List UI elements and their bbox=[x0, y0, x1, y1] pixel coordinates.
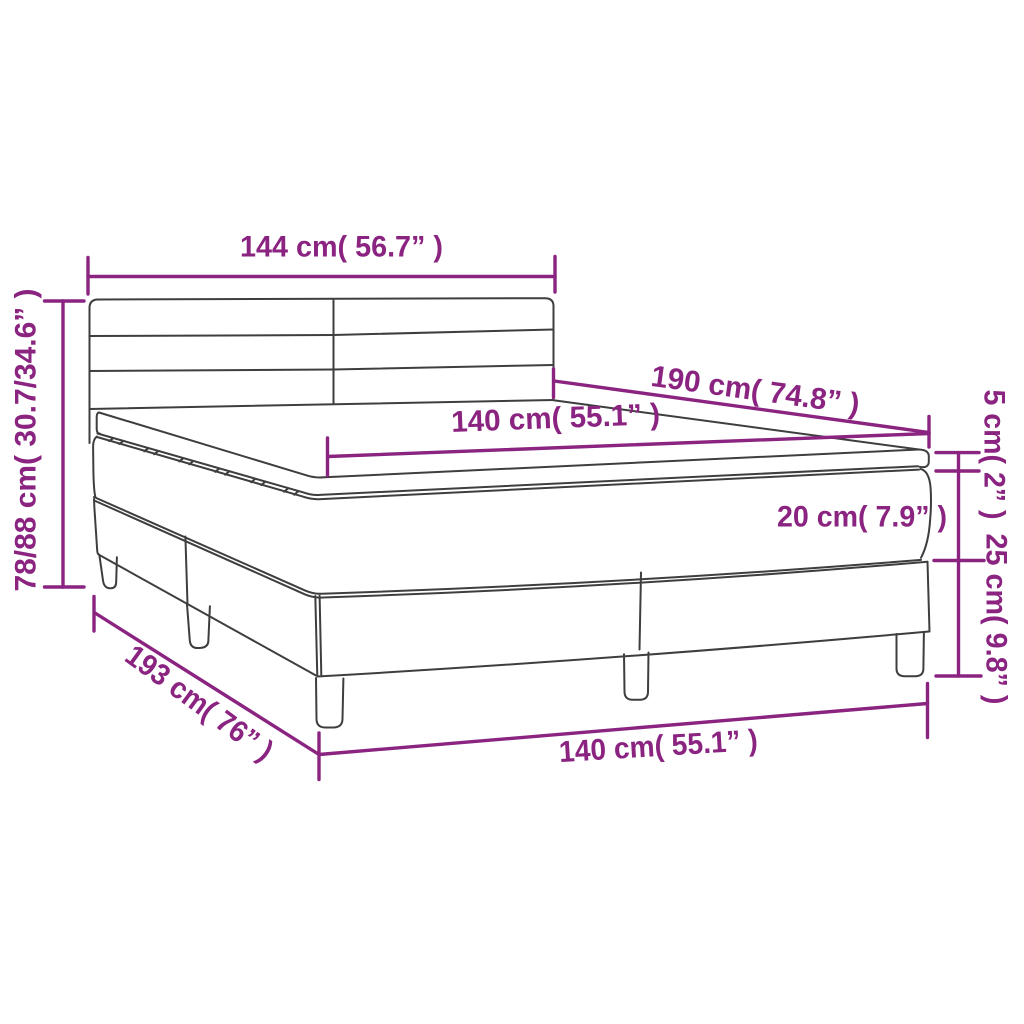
svg-text:190 cm( 74.8” ): 190 cm( 74.8” ) bbox=[649, 360, 862, 421]
svg-text:5 cm( 2” ): 5 cm( 2” ) bbox=[978, 390, 1011, 520]
svg-text:144 cm( 56.7” ): 144 cm( 56.7” ) bbox=[240, 231, 443, 264]
svg-text:20 cm( 7.9” ): 20 cm( 7.9” ) bbox=[777, 501, 947, 534]
svg-text:140 cm( 55.1” ): 140 cm( 55.1” ) bbox=[451, 398, 661, 439]
svg-text:78/88 cm( 30.7/34.6” ): 78/88 cm( 30.7/34.6” ) bbox=[10, 289, 43, 592]
svg-text:25 cm( 9.8” ): 25 cm( 9.8” ) bbox=[980, 534, 1013, 705]
svg-text:193 cm( 76” ): 193 cm( 76” ) bbox=[119, 639, 279, 768]
